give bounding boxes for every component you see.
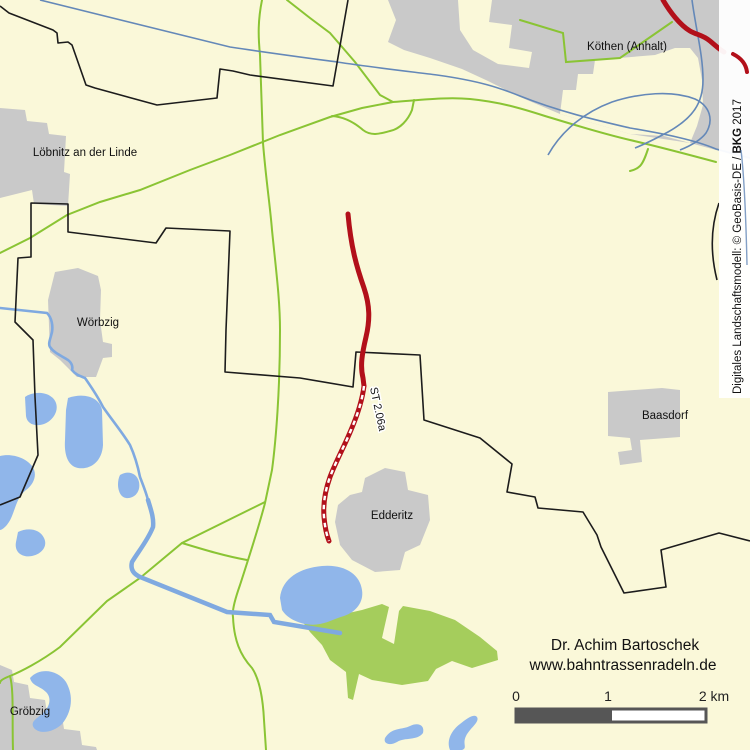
label-groebzig: Gröbzig bbox=[10, 706, 50, 718]
scale-label-2km: 2 km bbox=[699, 688, 729, 704]
lake bbox=[65, 396, 103, 469]
credit-website: www.bahntrassenradeln.de bbox=[529, 657, 717, 674]
label-edderitz: Edderitz bbox=[371, 510, 413, 522]
attribution-text: Digitales Landschaftsmodell: © GeoBasis-… bbox=[732, 99, 744, 394]
label-loebnitz: Löbnitz an der Linde bbox=[33, 147, 137, 159]
scale-bar-filled bbox=[515, 708, 612, 723]
scale-label-1: 1 bbox=[604, 688, 612, 704]
attribution-strip: Digitales Landschaftsmodell: © GeoBasis-… bbox=[719, 0, 750, 398]
map-canvas: Köthen (Anhalt) Löbnitz an der Linde Wör… bbox=[0, 0, 750, 750]
label-baasdorf: Baasdorf bbox=[642, 410, 689, 422]
credit-author: Dr. Achim Bartoschek bbox=[551, 637, 699, 654]
label-woerbzig: Wörbzig bbox=[77, 317, 119, 329]
label-koethen: Köthen (Anhalt) bbox=[587, 41, 667, 53]
scale-label-0: 0 bbox=[512, 688, 520, 704]
map-svg: Köthen (Anhalt) Löbnitz an der Linde Wör… bbox=[0, 0, 750, 750]
